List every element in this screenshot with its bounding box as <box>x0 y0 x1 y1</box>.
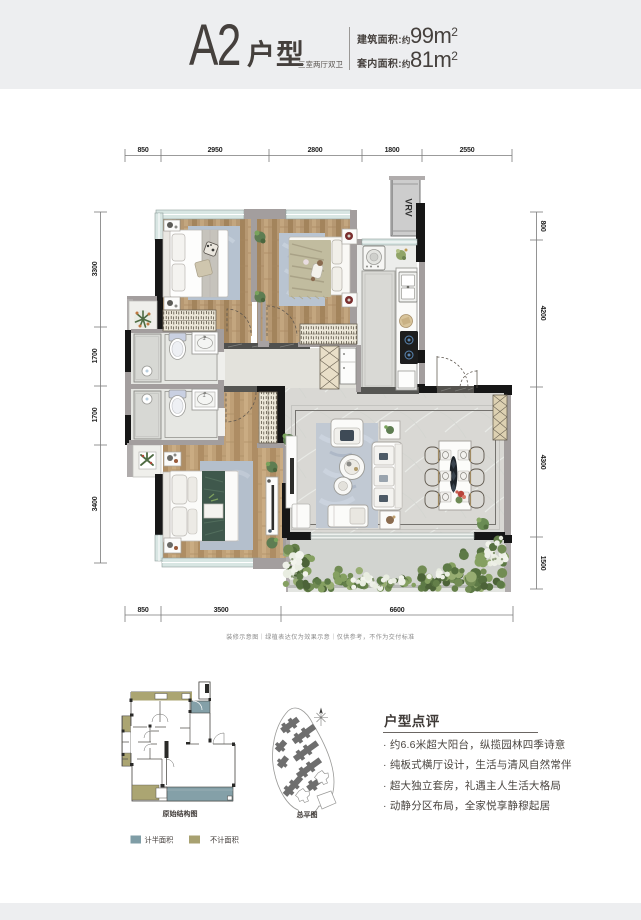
svg-text:2800: 2800 <box>308 147 323 154</box>
svg-text:850: 850 <box>137 147 148 154</box>
svg-text:计半面积: 计半面积 <box>145 836 174 845</box>
svg-text:3500: 3500 <box>214 607 229 614</box>
svg-text:1700: 1700 <box>92 407 99 422</box>
svg-text:3300: 3300 <box>92 261 99 276</box>
svg-text:850: 850 <box>137 607 148 614</box>
svg-text:800: 800 <box>539 220 546 231</box>
svg-text:原始结构图: 原始结构图 <box>163 809 198 818</box>
svg-text:1700: 1700 <box>92 348 99 363</box>
svg-text:不计面积: 不计面积 <box>210 836 239 845</box>
svg-text:4300: 4300 <box>539 455 546 470</box>
svg-text:1800: 1800 <box>385 147 400 154</box>
svg-text:1500: 1500 <box>539 556 546 571</box>
svg-text:2950: 2950 <box>208 147 223 154</box>
svg-text:6600: 6600 <box>390 607 405 614</box>
svg-text:2550: 2550 <box>460 147 475 154</box>
svg-text:4200: 4200 <box>539 306 546 321</box>
svg-text:VRV: VRV <box>404 198 414 216</box>
svg-text:3400: 3400 <box>92 496 99 511</box>
svg-text:总平图: 总平图 <box>297 810 318 819</box>
